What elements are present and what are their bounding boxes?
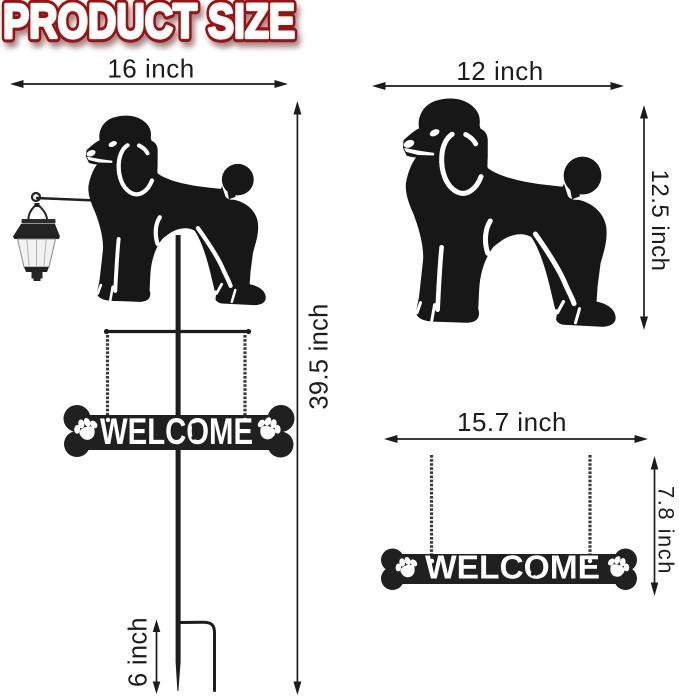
svg-text:7.8 inch: 7.8 inch [654, 486, 679, 575]
svg-text:39.5 inch: 39.5 inch [306, 303, 334, 409]
svg-text:WELCOME: WELCOME [425, 549, 600, 586]
svg-text:16 inch: 16 inch [107, 54, 194, 84]
svg-text:12.5 inch: 12.5 inch [646, 170, 673, 272]
svg-text:WELCOME: WELCOME [100, 411, 253, 452]
svg-text:PRODUCT SIZE: PRODUCT SIZE [3, 0, 295, 49]
svg-text:15.7 inch: 15.7 inch [457, 407, 567, 437]
svg-text:12 inch: 12 inch [456, 56, 543, 86]
svg-text:6 inch: 6 inch [125, 617, 153, 687]
